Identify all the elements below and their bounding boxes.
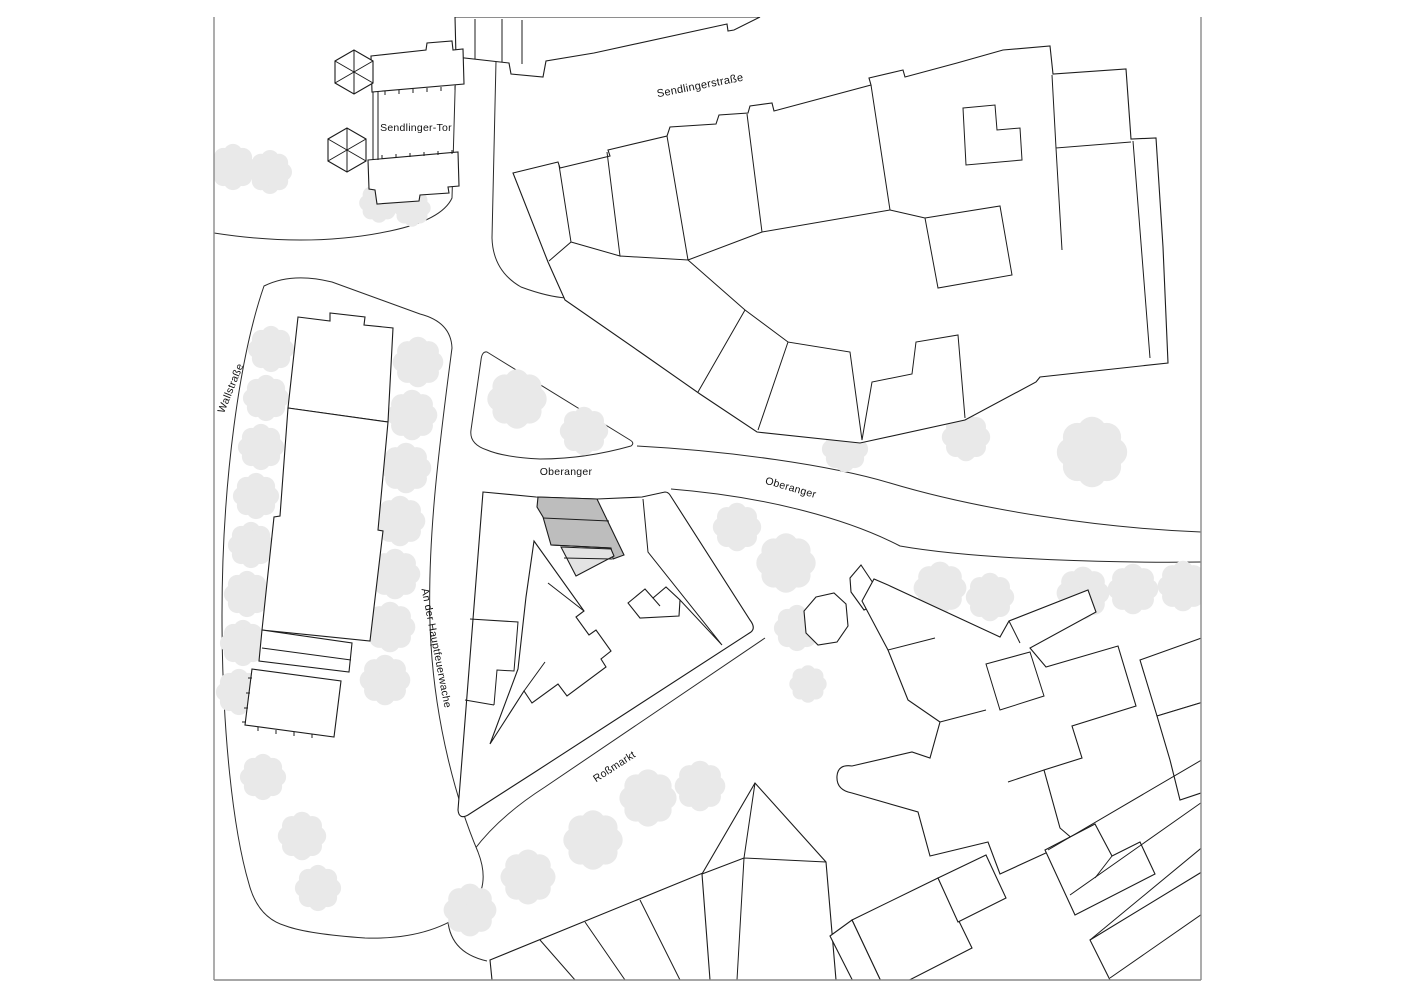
- label-sendlinger-tor: Sendlinger-Tor: [380, 122, 452, 134]
- gate-tower-north: [335, 50, 373, 94]
- gate-tower-south: [328, 128, 366, 172]
- gate-south-wing: [368, 152, 459, 204]
- gate-wall: [373, 92, 378, 160]
- label-oberanger-west: Oberanger: [540, 466, 593, 478]
- label-oberanger-east: Oberanger: [764, 475, 818, 501]
- block-sendlingerstrasse: [513, 46, 1168, 443]
- gable-roof-building: [702, 783, 836, 980]
- block-north-strip: [455, 17, 760, 77]
- annex-building: [245, 669, 341, 737]
- site-plan-canvas: Sendlinger-Tor Sendlingerstraße Wallstra…: [0, 0, 1415, 1000]
- complex-octagon: [804, 593, 848, 645]
- label-sendlingerstrasse: Sendlingerstraße: [656, 72, 744, 101]
- long-building-top: [288, 313, 393, 422]
- gate-north-wing: [371, 41, 464, 92]
- complex-east-parcel-2: [1157, 700, 1210, 800]
- site-plan: Sendlinger-Tor Sendlingerstraße Wallstra…: [0, 0, 1415, 1000]
